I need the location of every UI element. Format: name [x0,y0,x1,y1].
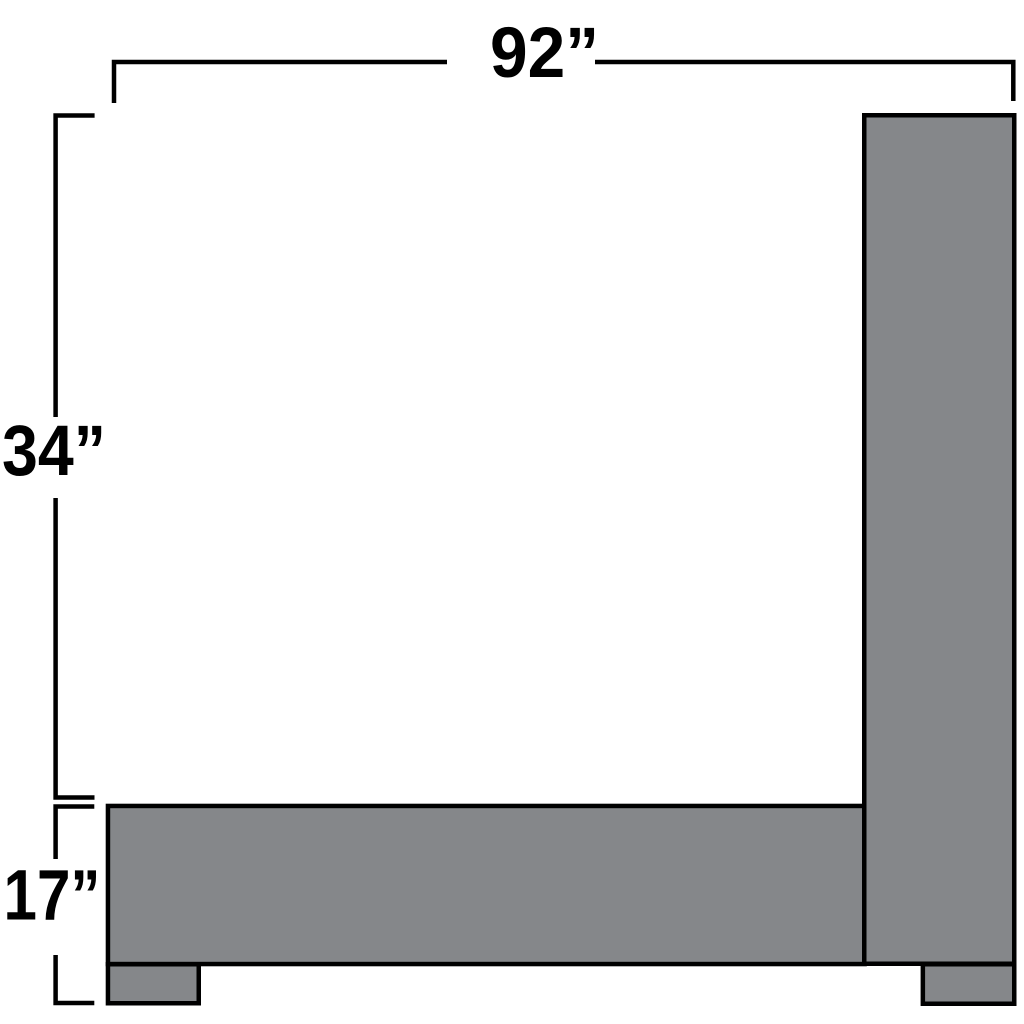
svg-text:92”: 92” [490,14,599,93]
svg-text:34”: 34” [2,412,106,491]
svg-text:17”: 17” [4,857,101,936]
